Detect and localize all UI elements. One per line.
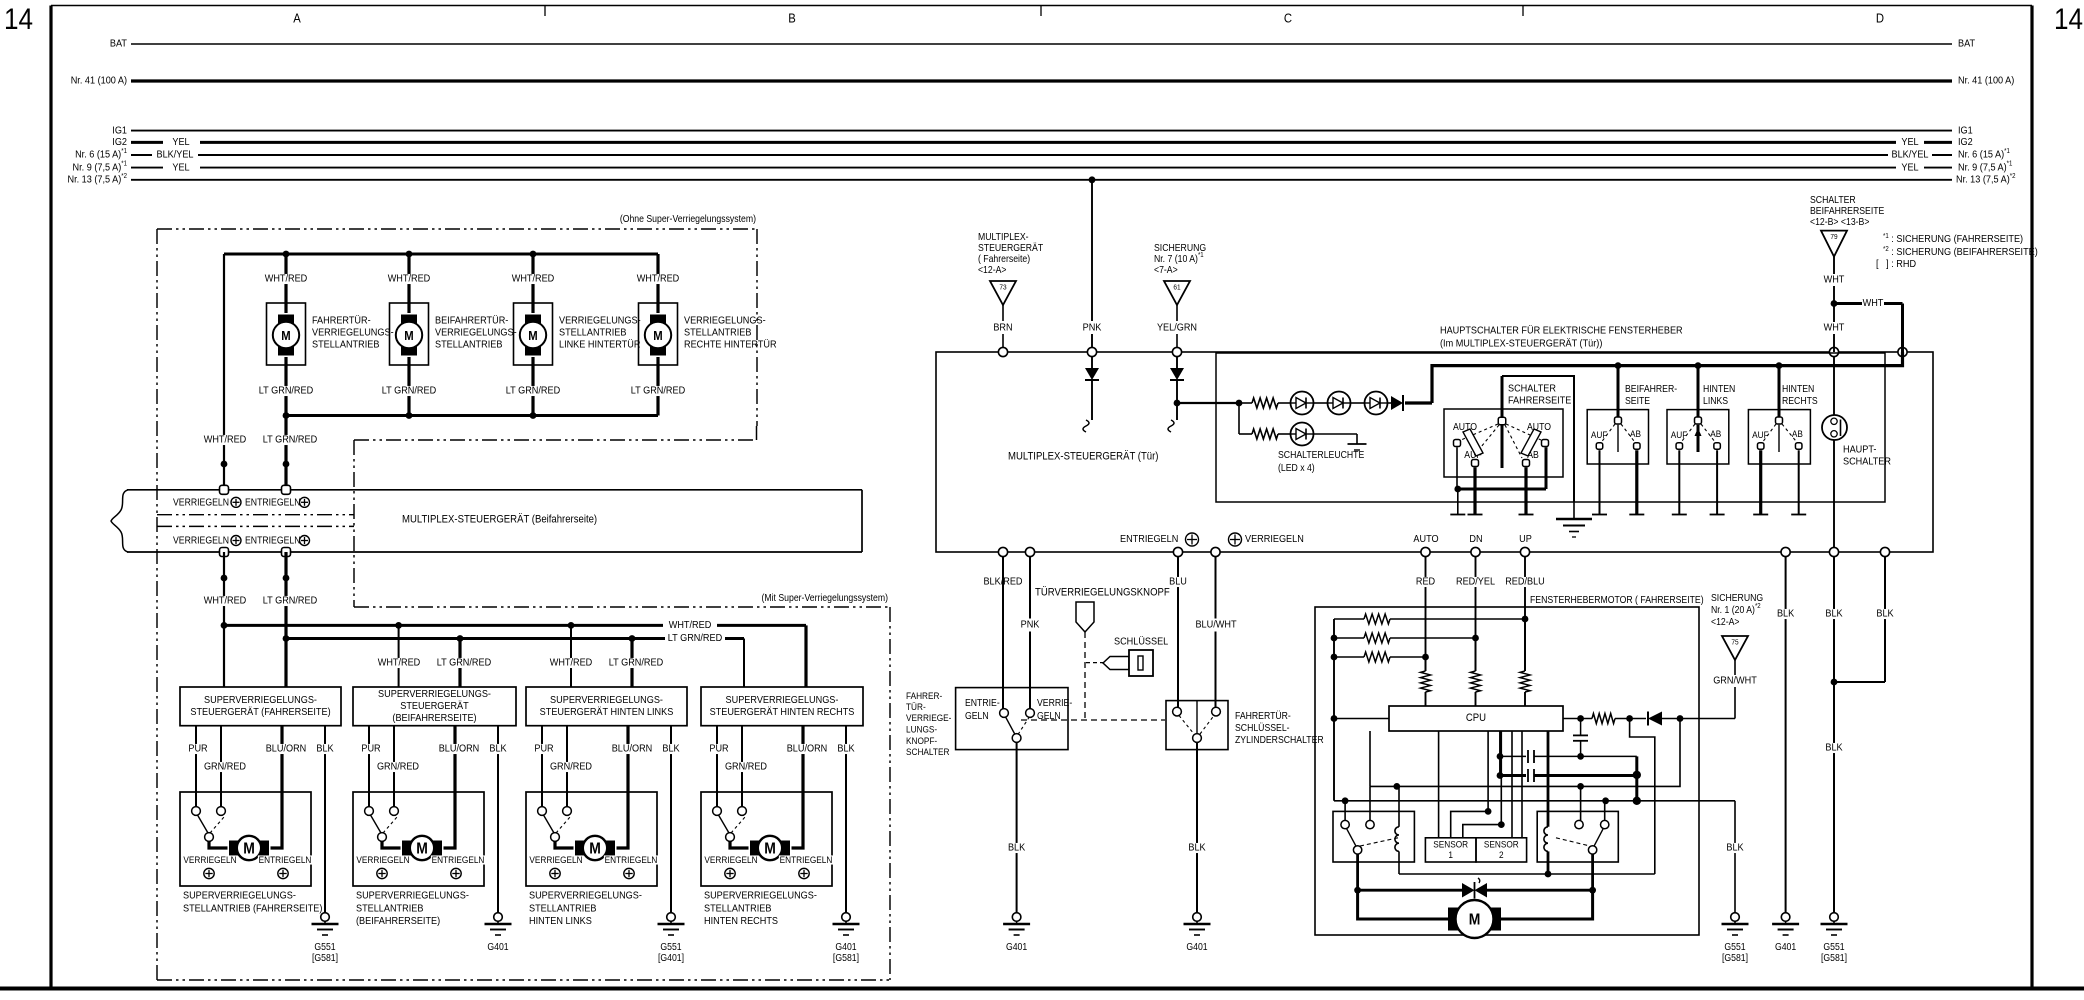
svg-text:STELLANTRIEB: STELLANTRIEB	[559, 327, 627, 339]
svg-text:RECHTS: RECHTS	[1782, 396, 1818, 407]
svg-text:BLK: BLK	[1008, 842, 1026, 854]
svg-text:M: M	[589, 839, 601, 857]
svg-text:STEUERGERÄT: STEUERGERÄT	[978, 243, 1043, 254]
svg-text:WHT/RED: WHT/RED	[550, 657, 593, 669]
svg-text:[G581]: [G581]	[312, 952, 338, 963]
svg-text:DN: DN	[1469, 534, 1482, 546]
svg-text:BLU/ORN: BLU/ORN	[787, 743, 828, 755]
svg-text:STEUERGERÄT HINTEN RECHTS: STEUERGERÄT HINTEN RECHTS	[710, 707, 855, 719]
svg-text:PUR: PUR	[534, 743, 553, 755]
svg-text:[G581]: [G581]	[1821, 952, 1847, 963]
svg-text:Nr. 7 (10 A)*1: Nr. 7 (10 A)*1	[1154, 251, 1204, 264]
svg-text:AUF: AUF	[1752, 430, 1769, 441]
svg-text:G551: G551	[1724, 942, 1745, 953]
svg-text:PNK: PNK	[1083, 322, 1102, 334]
svg-text:GRN/RED: GRN/RED	[725, 761, 767, 773]
svg-text:BLK: BLK	[316, 743, 334, 755]
svg-text:VERRIEGELUNGS-: VERRIEGELUNGS-	[435, 327, 517, 339]
svg-text:LT GRN/RED: LT GRN/RED	[263, 434, 317, 446]
svg-text:A: A	[293, 11, 301, 26]
svg-text:1: 1	[1448, 850, 1453, 861]
svg-text:BLK: BLK	[489, 743, 507, 755]
svg-text:ENTRIEGELN: ENTRIEGELN	[245, 535, 301, 546]
svg-text:ENTRIEGELN: ENTRIEGELN	[780, 855, 833, 866]
svg-text:SUPERVERRIEGELUNGS-: SUPERVERRIEGELUNGS-	[204, 695, 317, 707]
svg-text:PUR: PUR	[709, 743, 728, 755]
svg-text:[ ] : RHD: [ ] : RHD	[1876, 259, 1916, 271]
svg-text:BEIFAHRERSEITE: BEIFAHRERSEITE	[1810, 206, 1884, 217]
svg-text:AB: AB	[1710, 429, 1721, 440]
svg-text:LT GRN/RED: LT GRN/RED	[382, 385, 436, 397]
svg-text:GRN/RED: GRN/RED	[550, 761, 592, 773]
svg-text:PUR: PUR	[188, 743, 207, 755]
svg-text:YEL: YEL	[1901, 137, 1919, 149]
svg-text:M: M	[653, 328, 662, 343]
svg-text:VERRIEGELUNGS-: VERRIEGELUNGS-	[559, 315, 641, 327]
svg-text:14: 14	[4, 2, 33, 35]
svg-text:HAUPT-: HAUPT-	[1843, 444, 1876, 456]
svg-text:WHT/RED: WHT/RED	[388, 273, 431, 285]
svg-text:BLU/WHT: BLU/WHT	[1195, 619, 1236, 631]
svg-text:Nr. 1 (20 A)*2: Nr. 1 (20 A)*2	[1711, 602, 1761, 615]
svg-text:Nr. 9 (7,5 A)*1: Nr. 9 (7,5 A)*1	[73, 160, 128, 174]
svg-text:STELLANTRIEB: STELLANTRIEB	[356, 903, 424, 915]
svg-text:AUTO: AUTO	[1413, 534, 1439, 546]
svg-text:BLK: BLK	[1188, 842, 1206, 854]
svg-text:GELN: GELN	[965, 711, 989, 722]
svg-text:[G581]: [G581]	[1722, 952, 1748, 963]
svg-text:Nr. 13 (7,5 A)*2: Nr. 13 (7,5 A)*2	[67, 172, 127, 186]
svg-text:BLU/ORN: BLU/ORN	[439, 743, 480, 755]
svg-text:BLK: BLK	[837, 743, 855, 755]
svg-text:WHT/RED: WHT/RED	[637, 273, 680, 285]
svg-text:79: 79	[1830, 234, 1837, 241]
svg-text:M: M	[404, 328, 413, 343]
svg-text:[G581]: [G581]	[833, 952, 859, 963]
svg-text:G401: G401	[1775, 942, 1796, 953]
svg-text:UP: UP	[1519, 534, 1532, 546]
svg-text:WHT/RED: WHT/RED	[204, 595, 247, 607]
svg-text:<12-A>: <12-A>	[1711, 617, 1740, 628]
svg-text:BLK: BLK	[1876, 608, 1894, 620]
svg-text:LINKS: LINKS	[1703, 396, 1728, 407]
svg-text:Nr. 41 (100 A): Nr. 41 (100 A)	[1958, 75, 2014, 87]
svg-text:RED: RED	[1416, 576, 1435, 588]
svg-text:STEUERGERÄT HINTEN LINKS: STEUERGERÄT HINTEN LINKS	[540, 707, 674, 719]
svg-text:Nr. 41 (100 A): Nr. 41 (100 A)	[71, 75, 127, 87]
svg-text:(Mit Super-Verriegelungssystem: (Mit Super-Verriegelungssystem)	[761, 593, 888, 604]
svg-text:M: M	[528, 328, 537, 343]
svg-text:STEUERGERÄT (FAHRERSEITE): STEUERGERÄT (FAHRERSEITE)	[190, 707, 330, 719]
svg-text:G401: G401	[1006, 942, 1027, 953]
svg-text:HINTEN: HINTEN	[1782, 384, 1814, 395]
svg-text:M: M	[243, 839, 255, 857]
svg-text:WHT/RED: WHT/RED	[204, 434, 247, 446]
svg-text:BEIFAHRER-: BEIFAHRER-	[1625, 384, 1677, 395]
svg-text:WHT: WHT	[1863, 298, 1884, 310]
svg-text:VERRIEGELUNGS-: VERRIEGELUNGS-	[312, 327, 394, 339]
svg-text:BLK: BLK	[662, 743, 680, 755]
svg-text:M: M	[764, 839, 776, 857]
svg-text:FAHRER-: FAHRER-	[906, 691, 942, 702]
svg-text:C: C	[1284, 11, 1292, 26]
svg-text:VERRIEGELN: VERRIEGELN	[183, 855, 236, 866]
svg-text:YEL: YEL	[172, 162, 190, 174]
svg-text:GRN/WHT: GRN/WHT	[1713, 675, 1757, 687]
svg-text:RECHTE HINTERTÜR: RECHTE HINTERTÜR	[684, 339, 777, 351]
svg-text:SUPERVERRIEGELUNGS-: SUPERVERRIEGELUNGS-	[378, 689, 491, 701]
svg-text:RED/YEL: RED/YEL	[1456, 576, 1496, 588]
svg-text:Nr. 6 (15 A)*1: Nr. 6 (15 A)*1	[75, 147, 127, 161]
svg-text:SCHALTER: SCHALTER	[1843, 456, 1891, 468]
svg-text:G551: G551	[314, 942, 335, 953]
svg-text:FAHRERSEITE: FAHRERSEITE	[1508, 395, 1572, 407]
svg-text:SUPERVERRIEGELUNGS-: SUPERVERRIEGELUNGS-	[726, 695, 839, 707]
svg-text:M: M	[1469, 910, 1481, 928]
svg-text:SUPERVERRIEGELUNGS-: SUPERVERRIEGELUNGS-	[704, 890, 817, 902]
svg-text:LT GRN/RED: LT GRN/RED	[609, 657, 663, 669]
svg-text:SCHALTER: SCHALTER	[906, 747, 950, 758]
svg-text:FAHRERTÜR-: FAHRERTÜR-	[312, 315, 371, 327]
svg-text:SCHLÜSSEL: SCHLÜSSEL	[1114, 636, 1169, 648]
svg-text:SUPERVERRIEGELUNGS-: SUPERVERRIEGELUNGS-	[529, 890, 642, 902]
svg-text:D: D	[1876, 11, 1884, 26]
svg-text:SUPERVERRIEGELUNGS-: SUPERVERRIEGELUNGS-	[183, 890, 296, 902]
svg-text:VERRIEGELN: VERRIEGELN	[1245, 534, 1304, 546]
svg-text:(Im MULTIPLEX-STEUERGERÄT (Tür: (Im MULTIPLEX-STEUERGERÄT (Tür))	[1440, 338, 1602, 350]
svg-text:ENTRIE-: ENTRIE-	[965, 698, 1000, 709]
svg-text:BLK: BLK	[1825, 608, 1843, 620]
svg-text:(BEIFAHRERSEITE): (BEIFAHRERSEITE)	[392, 713, 476, 725]
svg-text:BLK: BLK	[1777, 608, 1795, 620]
svg-text:BLU/ORN: BLU/ORN	[612, 743, 653, 755]
svg-text:BEIFAHRERTÜR-: BEIFAHRERTÜR-	[435, 315, 508, 327]
svg-text:BLK/YEL: BLK/YEL	[156, 149, 194, 161]
svg-text:SCHALTER: SCHALTER	[1810, 195, 1856, 206]
svg-text:HINTEN: HINTEN	[1703, 384, 1735, 395]
svg-text:SUPERVERRIEGELUNGS-: SUPERVERRIEGELUNGS-	[356, 890, 469, 902]
svg-text:IG1: IG1	[1958, 125, 1973, 137]
svg-text:(LED x 4): (LED x 4)	[1278, 463, 1315, 474]
svg-text:TÜR-: TÜR-	[906, 702, 926, 713]
svg-text:MULTIPLEX-STEUERGERÄT (Beifahr: MULTIPLEX-STEUERGERÄT (Beifahrerseite)	[402, 513, 597, 526]
svg-text:AUF: AUF	[1671, 430, 1688, 441]
svg-text:LT GRN/RED: LT GRN/RED	[631, 385, 685, 397]
svg-text:SCHALTER: SCHALTER	[1508, 383, 1556, 395]
svg-text:<7-A>: <7-A>	[1154, 265, 1178, 276]
svg-text:AB: AB	[1792, 429, 1803, 440]
svg-text:ENTRIEGELN: ENTRIEGELN	[259, 855, 312, 866]
svg-text:Nr. 13 (7,5 A)*2: Nr. 13 (7,5 A)*2	[1956, 172, 2016, 186]
svg-text:G401: G401	[487, 942, 508, 953]
svg-text:BLU/ORN: BLU/ORN	[266, 743, 307, 755]
svg-text:LT GRN/RED: LT GRN/RED	[506, 385, 560, 397]
svg-text:WHT: WHT	[1824, 274, 1845, 286]
svg-text:75: 75	[1731, 639, 1738, 646]
svg-text:FENSTERHEBERMOTOR ( FAHRERSEIT: FENSTERHEBERMOTOR ( FAHRERSEITE)	[1530, 595, 1704, 606]
svg-text:WHT/RED: WHT/RED	[378, 657, 421, 669]
svg-text:AUF: AUF	[1591, 430, 1608, 441]
svg-text:M: M	[281, 328, 290, 343]
svg-text:B: B	[788, 11, 796, 26]
svg-text:*1 : SICHERUNG (FAHRERSEITE): *1 : SICHERUNG (FAHRERSEITE)	[1883, 232, 2023, 245]
svg-text:[G401]: [G401]	[658, 952, 684, 963]
svg-text:IG2: IG2	[1958, 137, 1973, 149]
svg-text:2: 2	[1499, 850, 1504, 861]
svg-text:TÜRVERRIEGELUNGSKNOPF: TÜRVERRIEGELUNGSKNOPF	[1035, 586, 1170, 599]
svg-text:SENSOR: SENSOR	[1484, 839, 1519, 850]
svg-text:YEL: YEL	[172, 137, 190, 149]
svg-text:*2 : SICHERUNG (BEIFAHRERSEITE: *2 : SICHERUNG (BEIFAHRERSEITE)	[1883, 245, 2038, 258]
svg-text:VERRIEGELN: VERRIEGELN	[529, 855, 582, 866]
svg-text:BLK/YEL: BLK/YEL	[1891, 149, 1929, 161]
svg-text:LT GRN/RED: LT GRN/RED	[668, 633, 722, 645]
svg-text:M: M	[416, 839, 428, 857]
svg-text:YEL/GRN: YEL/GRN	[1157, 322, 1197, 334]
svg-text:AB: AB	[1630, 429, 1641, 440]
svg-text:BAT: BAT	[110, 38, 127, 50]
svg-text:SCHALTERLEUCHTE: SCHALTERLEUCHTE	[1278, 450, 1364, 461]
svg-text:SEITE: SEITE	[1625, 396, 1650, 407]
svg-text:MULTIPLEX-STEUERGERÄT (Tür): MULTIPLEX-STEUERGERÄT (Tür)	[1008, 450, 1158, 463]
svg-text:14: 14	[2054, 2, 2083, 35]
svg-text:YEL: YEL	[1901, 162, 1919, 174]
svg-text:VERRIEGELN: VERRIEGELN	[173, 535, 229, 546]
svg-text:<12-B> <13-B>: <12-B> <13-B>	[1810, 217, 1870, 228]
svg-text:STELLANTRIEB: STELLANTRIEB	[704, 903, 772, 915]
svg-text:PNK: PNK	[1021, 619, 1040, 631]
svg-text:STELLANTRIEB: STELLANTRIEB	[684, 327, 752, 339]
svg-text:LINKE HINTERTÜR: LINKE HINTERTÜR	[559, 339, 640, 351]
svg-text:PUR: PUR	[361, 743, 380, 755]
svg-text:ENTRIEGELN: ENTRIEGELN	[1120, 534, 1178, 546]
svg-text:ENTRIEGELN: ENTRIEGELN	[245, 497, 301, 508]
svg-text:G401: G401	[835, 942, 856, 953]
svg-text:( Fahrerseite): ( Fahrerseite)	[978, 254, 1030, 265]
svg-text:FAHRERTÜR-: FAHRERTÜR-	[1235, 711, 1291, 722]
svg-text:VERRIEGELN: VERRIEGELN	[173, 497, 229, 508]
svg-text:VERRIE-: VERRIE-	[1037, 698, 1072, 709]
svg-text:LT GRN/RED: LT GRN/RED	[437, 657, 491, 669]
svg-text:BAT: BAT	[1958, 38, 1975, 50]
svg-text:MULTIPLEX-: MULTIPLEX-	[978, 232, 1029, 243]
svg-text:WHT: WHT	[1824, 322, 1845, 334]
svg-text:SCHLÜSSEL-: SCHLÜSSEL-	[1235, 723, 1290, 734]
svg-text:STELLANTRIEB: STELLANTRIEB	[529, 903, 597, 915]
svg-text:VERRIEGELN: VERRIEGELN	[704, 855, 757, 866]
svg-text:GRN/RED: GRN/RED	[377, 761, 419, 773]
svg-text:<12-A>: <12-A>	[978, 265, 1007, 276]
svg-text:GRN/RED: GRN/RED	[204, 761, 246, 773]
svg-text:SUPERVERRIEGELUNGS-: SUPERVERRIEGELUNGS-	[550, 695, 663, 707]
svg-text:RED/BLU: RED/BLU	[1505, 576, 1545, 588]
svg-text:ZYLINDERSCHALTER: ZYLINDERSCHALTER	[1235, 735, 1324, 746]
svg-text:G551: G551	[1823, 942, 1844, 953]
svg-text:STELLANTRIEB: STELLANTRIEB	[435, 339, 503, 351]
svg-text:CPU: CPU	[1466, 713, 1486, 725]
svg-text:BLK: BLK	[1726, 842, 1744, 854]
svg-text:HINTEN RECHTS: HINTEN RECHTS	[704, 916, 778, 928]
svg-text:STELLANTRIEB: STELLANTRIEB	[312, 339, 380, 351]
svg-text:WHT/RED: WHT/RED	[669, 620, 712, 632]
svg-text:WHT/RED: WHT/RED	[512, 273, 555, 285]
svg-text:61: 61	[1173, 284, 1180, 291]
svg-text:BLU: BLU	[1169, 576, 1187, 588]
svg-text:BLK: BLK	[1825, 742, 1843, 754]
svg-text:HINTEN LINKS: HINTEN LINKS	[529, 916, 592, 928]
svg-text:HAUPTSCHALTER FÜR ELEKTRISCHE: HAUPTSCHALTER FÜR ELEKTRISCHE FENSTERHEB…	[1440, 325, 1683, 337]
svg-text:ENTRIEGELN: ENTRIEGELN	[432, 855, 485, 866]
svg-text:GELN: GELN	[1037, 711, 1061, 722]
svg-text:LT GRN/RED: LT GRN/RED	[259, 385, 313, 397]
svg-text:STEUERGERÄT: STEUERGERÄT	[400, 701, 468, 713]
svg-text:LT GRN/RED: LT GRN/RED	[263, 595, 317, 607]
svg-text:73: 73	[999, 284, 1006, 291]
svg-text:STELLANTRIEB (FAHRERSEITE): STELLANTRIEB (FAHRERSEITE)	[183, 903, 322, 915]
svg-text:VERRIEGELUNGS-: VERRIEGELUNGS-	[684, 315, 766, 327]
svg-text:BRN: BRN	[993, 322, 1012, 334]
svg-text:SENSOR: SENSOR	[1433, 839, 1468, 850]
svg-text:Nr. 6 (15 A)*1: Nr. 6 (15 A)*1	[1958, 147, 2010, 161]
svg-text:G551: G551	[660, 942, 681, 953]
svg-text:Nr. 9 (7,5 A)*1: Nr. 9 (7,5 A)*1	[1958, 160, 2013, 174]
svg-text:(BEIFAHRERSEITE): (BEIFAHRERSEITE)	[356, 916, 440, 928]
svg-text:ENTRIEGELN: ENTRIEGELN	[605, 855, 658, 866]
svg-text:WHT/RED: WHT/RED	[265, 273, 308, 285]
svg-text:(Ohne Super-Verriegelungssyste: (Ohne Super-Verriegelungssystem)	[620, 214, 756, 225]
svg-text:VERRIEGELN: VERRIEGELN	[356, 855, 409, 866]
svg-text:LUNGS-: LUNGS-	[906, 724, 937, 735]
svg-text:VERRIEGE-: VERRIEGE-	[906, 713, 951, 724]
svg-text:IG1: IG1	[112, 125, 127, 137]
svg-text:G401: G401	[1186, 942, 1207, 953]
svg-text:KNOPF-: KNOPF-	[906, 736, 937, 747]
